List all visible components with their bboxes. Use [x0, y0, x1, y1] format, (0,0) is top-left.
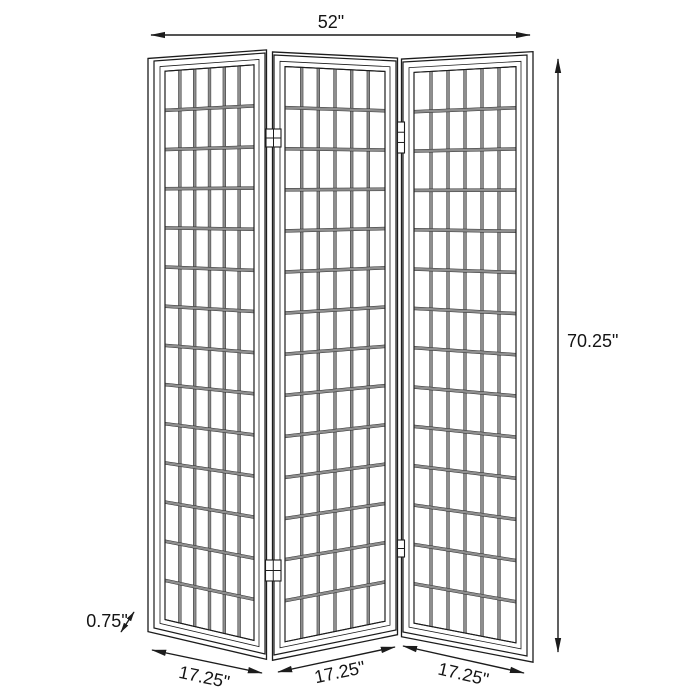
- product-dimension-diagram: 52" 70.25" 0.75" 17.25" 17.25" 17.25": [0, 0, 700, 700]
- panel-2-lattice-horizontal-rail: [285, 188, 385, 192]
- height-dimension-label: 70.25": [567, 331, 618, 351]
- width-dimension-label: 52": [318, 12, 344, 32]
- panel-3-lattice-horizontal-rail: [414, 189, 516, 192]
- screen-panels: [148, 50, 533, 662]
- panel2-width-label: 17.25": [313, 657, 367, 687]
- panel1-width-label: 17.25": [177, 662, 231, 692]
- panel-1-lattice-horizontal-rail: [165, 187, 254, 191]
- diagram-canvas: 52" 70.25" 0.75" 17.25" 17.25" 17.25": [0, 0, 700, 700]
- depth-dimension-label: 0.75": [86, 611, 127, 631]
- hinge-right-upper-icon: [398, 122, 405, 153]
